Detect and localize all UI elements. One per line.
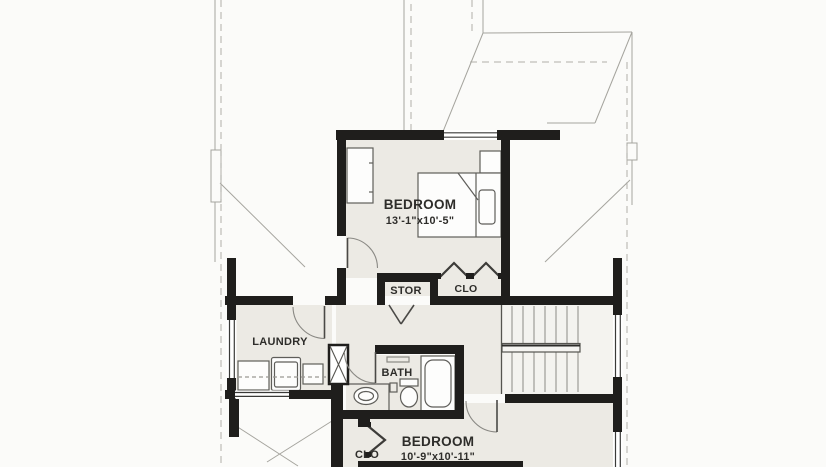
floor-hall-bath-doorway [346, 345, 375, 355]
wall [337, 130, 346, 236]
washer [238, 361, 269, 390]
wall [495, 296, 613, 305]
wall [331, 384, 343, 467]
label-storage: STOR [390, 285, 422, 297]
label-bedroom2: BEDROOM [402, 434, 475, 449]
wall [227, 258, 236, 320]
window-mask [613, 432, 623, 467]
wall [505, 394, 613, 403]
wall [337, 268, 346, 305]
chase [329, 345, 348, 384]
wall [229, 399, 239, 437]
label-bedroom2-dims: 10'-9"x10'-11" [401, 451, 475, 463]
window-mask [235, 391, 289, 399]
wall [497, 130, 560, 140]
bed-pillow [479, 190, 495, 224]
roof-slope-bottom-left-a [233, 424, 298, 466]
roof-plane-right [595, 32, 632, 123]
toilet-bowl [401, 387, 418, 407]
label-bedroom1: BEDROOM [384, 197, 457, 212]
roof-valley-left [220, 183, 305, 267]
roof-notch-right [627, 143, 637, 160]
sink [354, 388, 378, 405]
laundry-cabinet [303, 364, 323, 384]
wall [289, 390, 332, 399]
floor-plan-page: BEDROOM 13'-1"x10'-5" STOR CLO LAUNDRY B… [0, 0, 826, 467]
window-mask [444, 131, 497, 140]
toilet-tank [400, 379, 418, 386]
roof-plane-top [483, 32, 632, 33]
nightstand [480, 151, 501, 173]
wall [455, 345, 464, 419]
window-mask [227, 320, 237, 378]
wall [225, 390, 236, 399]
wall [613, 377, 622, 432]
bifold-hinge [498, 273, 503, 279]
window-mask [613, 315, 623, 377]
wall [336, 130, 444, 140]
roof-plane-left [442, 33, 483, 134]
roof-valley-right [545, 180, 630, 262]
dresser [347, 148, 373, 203]
floor-bedroom2-entry [464, 403, 613, 419]
bifold-hinge [466, 273, 474, 279]
floor-plan-drawing: BEDROOM 13'-1"x10'-5" STOR CLO LAUNDRY B… [0, 0, 826, 467]
wall [375, 345, 460, 354]
bifold-hinge [365, 422, 371, 427]
bifold-hinge [436, 273, 441, 279]
wall [377, 273, 437, 282]
dryer-door [275, 362, 298, 387]
label-bath: BATH [382, 367, 413, 379]
label-bedroom1-dims: 13'-1"x10'-5" [386, 215, 455, 227]
label-laundry: LAUNDRY [252, 336, 308, 348]
wall [613, 258, 622, 315]
wall [377, 273, 385, 305]
wall [331, 410, 464, 419]
label-closet1: CLO [454, 283, 477, 295]
label-closet2: CLO [355, 449, 379, 461]
roof-notch-left [211, 150, 221, 202]
wall [501, 140, 510, 305]
wall [325, 296, 337, 305]
